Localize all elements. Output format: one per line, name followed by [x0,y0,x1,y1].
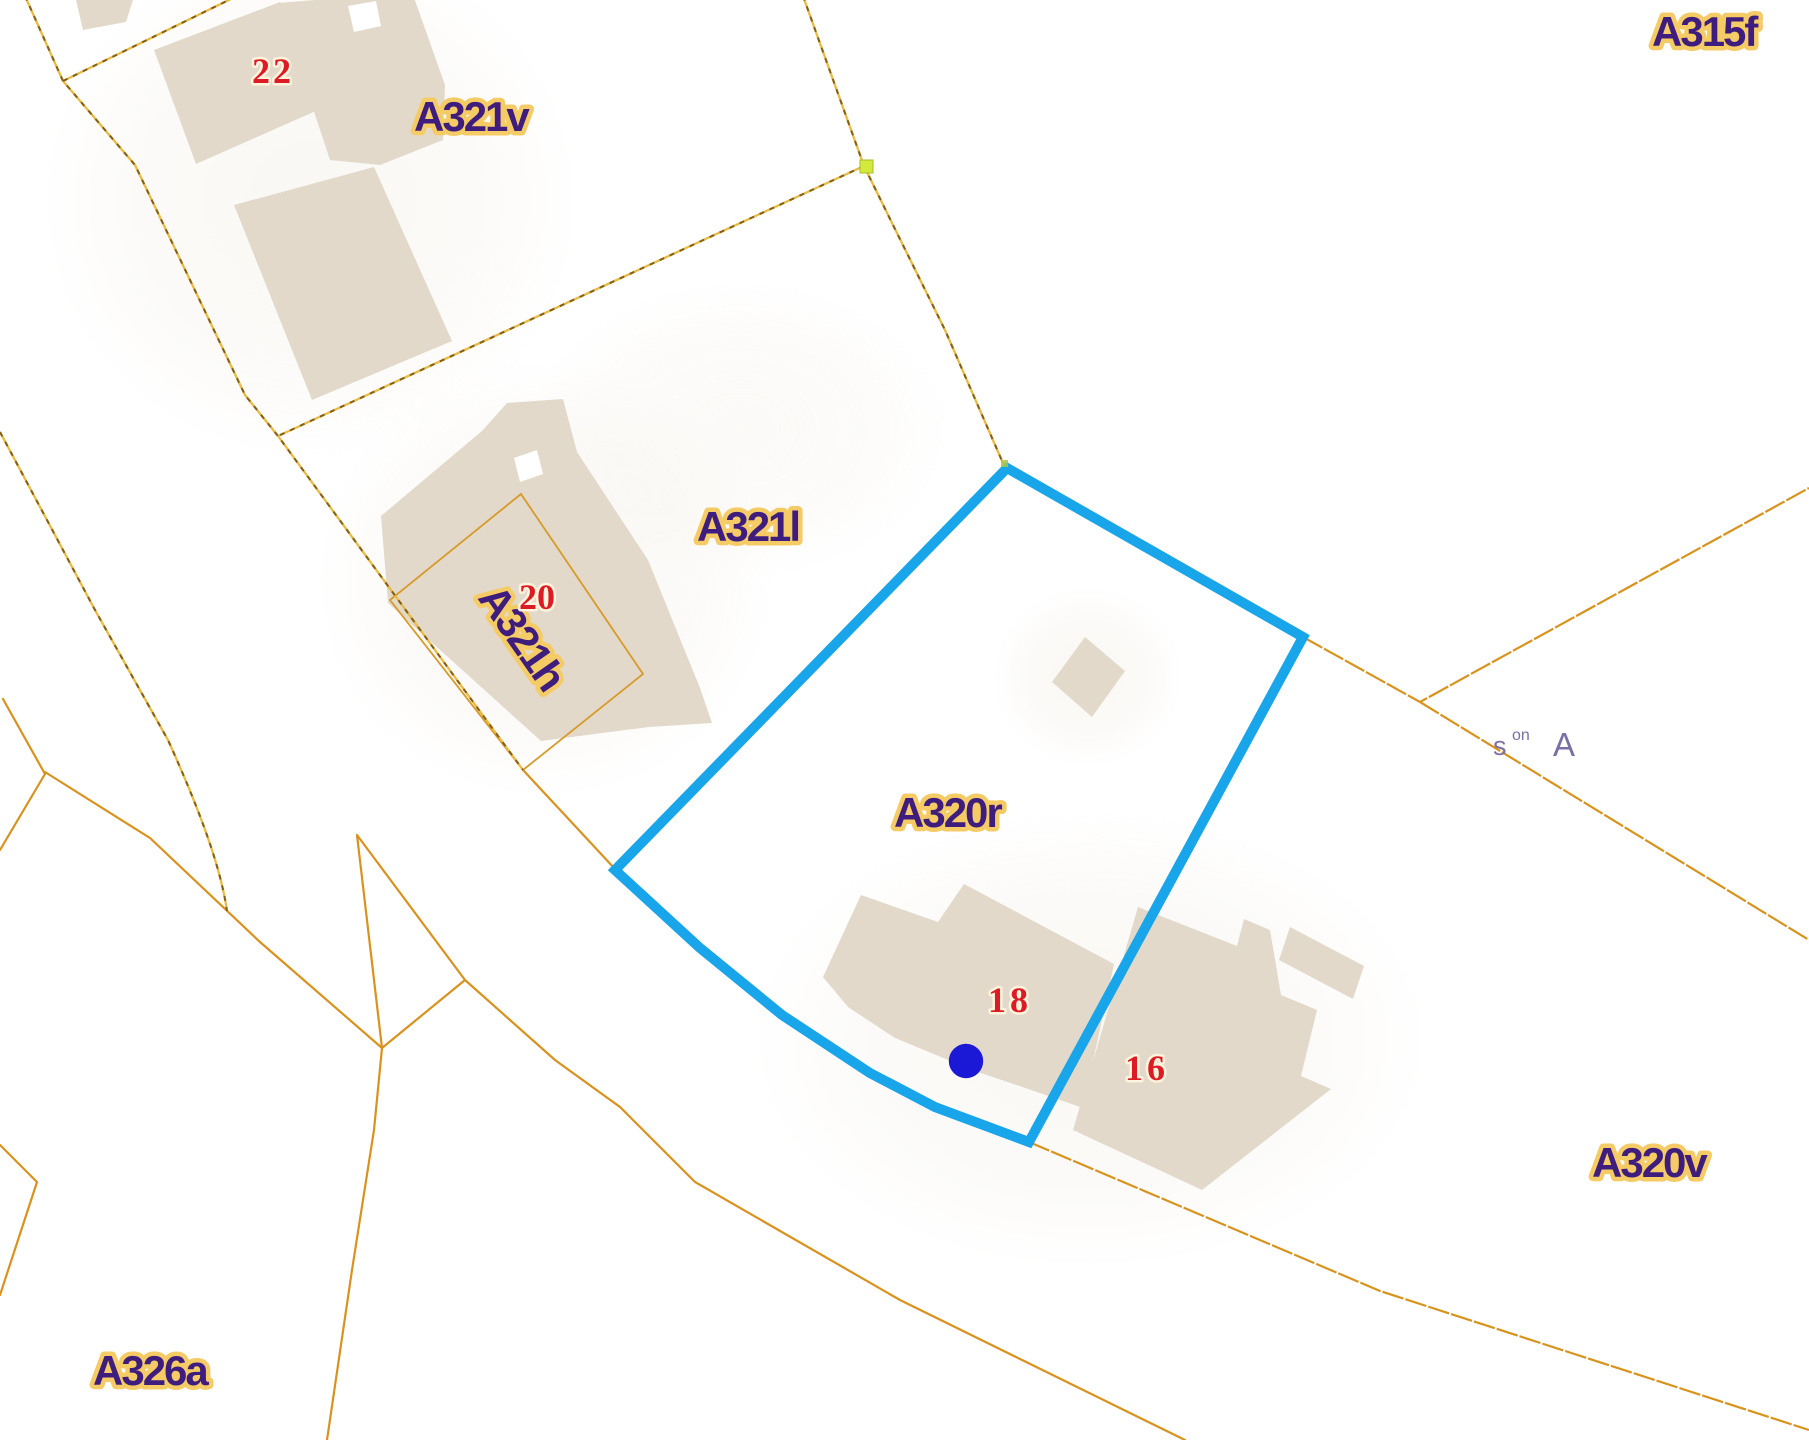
svg-text:A321l: A321l [697,503,799,550]
svg-text:A326a: A326a [93,1347,209,1394]
svg-text:A315f: A315f [1652,8,1759,55]
svg-text:A321v: A321v [414,93,530,140]
svg-text:20: 20 [519,577,555,617]
svg-text:22: 22 [252,51,294,91]
svg-text:16: 16 [1125,1048,1169,1088]
svg-text:on: on [1512,727,1530,744]
svg-text:s: s [1493,731,1507,761]
svg-text:A320r: A320r [894,789,1002,836]
svg-text:18: 18 [988,980,1032,1020]
svg-text:A: A [1553,726,1575,763]
svg-text:A320v: A320v [1592,1139,1708,1186]
